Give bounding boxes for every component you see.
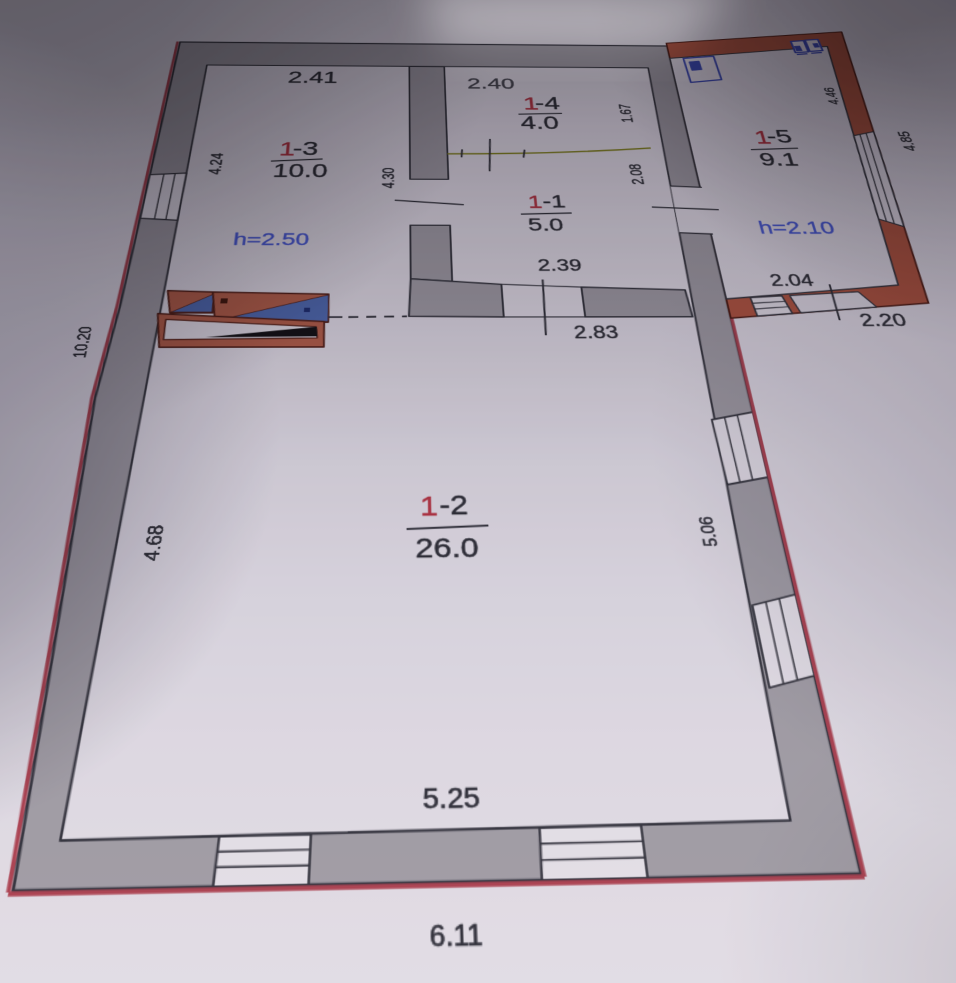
svg-text:4.0: 4.0 bbox=[520, 113, 560, 133]
svg-text:-2: -2 bbox=[439, 491, 469, 522]
svg-text:1: 1 bbox=[420, 492, 439, 523]
svg-text:2.83: 2.83 bbox=[573, 324, 620, 343]
svg-text:4.30: 4.30 bbox=[379, 167, 398, 188]
svg-text:2.20: 2.20 bbox=[857, 311, 909, 330]
svg-text:-4: -4 bbox=[534, 94, 561, 114]
svg-text:10.20: 10.20 bbox=[71, 326, 96, 358]
svg-text:5.0: 5.0 bbox=[527, 214, 564, 234]
svg-text:h=2.10: h=2.10 bbox=[756, 218, 837, 237]
svg-text:1.67: 1.67 bbox=[616, 104, 637, 123]
svg-text:2.41: 2.41 bbox=[287, 69, 338, 87]
svg-text:6.11: 6.11 bbox=[430, 918, 484, 953]
svg-text:10.0: 10.0 bbox=[272, 161, 328, 181]
svg-text:h=2.50: h=2.50 bbox=[232, 229, 310, 249]
svg-text:4.85: 4.85 bbox=[894, 131, 920, 151]
svg-text:5.25: 5.25 bbox=[423, 784, 481, 816]
svg-text:-3: -3 bbox=[292, 138, 319, 159]
svg-text:9.1: 9.1 bbox=[757, 150, 801, 170]
svg-text:4.24: 4.24 bbox=[204, 153, 227, 175]
svg-text:4.68: 4.68 bbox=[139, 525, 169, 561]
svg-text:26.0: 26.0 bbox=[415, 534, 479, 565]
svg-text:-1: -1 bbox=[542, 193, 567, 212]
svg-text:2.04: 2.04 bbox=[768, 272, 816, 289]
svg-text:2.39: 2.39 bbox=[537, 257, 583, 274]
svg-text:2.40: 2.40 bbox=[467, 76, 516, 93]
